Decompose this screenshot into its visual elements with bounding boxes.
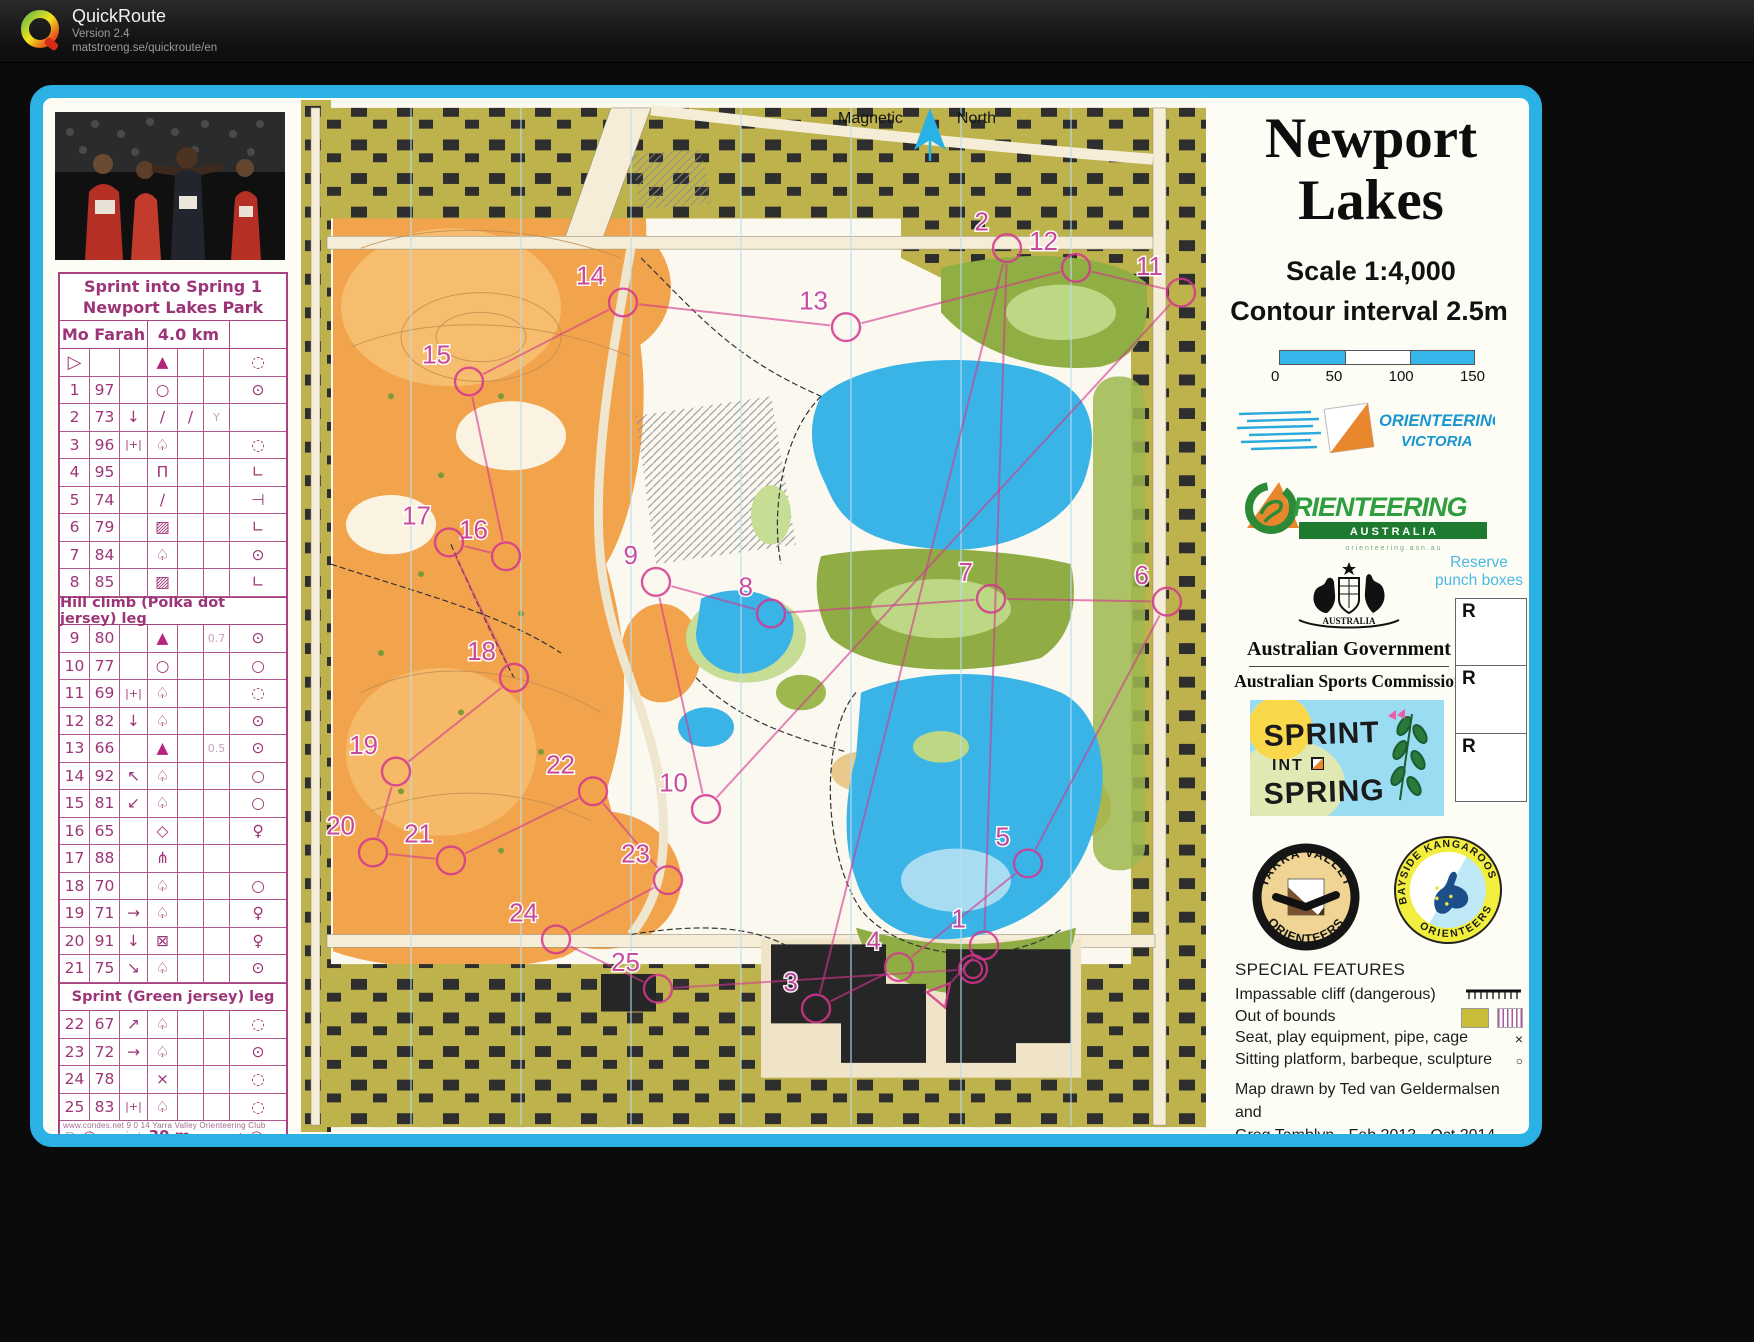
card-cell: ↗ — [120, 1011, 148, 1038]
card-cell — [120, 845, 148, 872]
card-cell: ○ — [230, 763, 286, 790]
card-cell: 4 — [60, 459, 90, 486]
card-cell — [204, 542, 230, 569]
card-cell: ◇ — [148, 818, 178, 845]
card-cell: 17 — [60, 845, 90, 872]
card-cell: ∕ — [148, 404, 178, 431]
card-cell: ◌ — [230, 432, 286, 459]
card-cell — [230, 845, 286, 872]
card-cell: ○ — [148, 377, 178, 404]
app-version: Version 2.4 — [72, 27, 217, 41]
card-cell: ○ — [148, 653, 178, 680]
card-cell: ◌ — [230, 1066, 286, 1093]
scale-tick: 100 — [1389, 368, 1414, 385]
card-cell — [120, 873, 148, 900]
card-cell: ♤ — [148, 763, 178, 790]
svg-text:AUSTRALIA: AUSTRALIA — [1322, 616, 1376, 626]
card-cell: 12 — [60, 708, 90, 735]
legend-label: Impassable cliff (dangerous) — [1235, 986, 1436, 1003]
legend-label: Seat, play equipment, pipe, cage — [1235, 1029, 1468, 1046]
special-features-heading: SPECIAL FEATURES — [1235, 960, 1529, 980]
card-cell: 77 — [90, 653, 120, 680]
card-cell: 75 — [90, 955, 120, 982]
punch-box: R — [1455, 666, 1527, 734]
punch-boxes-label: Reserve punch boxes — [1429, 554, 1529, 590]
card-cell: ♤ — [148, 432, 178, 459]
card-cell — [204, 1011, 230, 1038]
card-cell — [204, 955, 230, 982]
card-cell: ♤ — [148, 1039, 178, 1066]
card-cell: 69 — [90, 680, 120, 707]
control-number: 2 — [975, 208, 989, 236]
control-number: 25 — [611, 949, 640, 977]
card-cell: 73 — [90, 404, 120, 431]
card-cell — [178, 680, 204, 707]
card-cell — [204, 708, 230, 735]
control-number: 1 — [952, 906, 966, 934]
north-label-left: Magnetic — [838, 110, 903, 128]
card-cell: ○ — [230, 790, 286, 817]
pretex-print-note: Pretex print — [65, 1129, 142, 1146]
card-cell: 92 — [90, 763, 120, 790]
card-cell: 85 — [90, 569, 120, 596]
control-number: 4 — [867, 927, 881, 955]
control-number: 22 — [546, 752, 575, 780]
sports-commission-label: Australian Sports Commission — [1213, 671, 1485, 692]
scale-bar — [1279, 350, 1475, 365]
card-cell — [204, 1094, 230, 1121]
legend-item: Impassable cliff (dangerous) — [1235, 984, 1529, 1006]
card-cell — [120, 653, 148, 680]
card-row: 1492↖♤○ — [60, 763, 286, 791]
card-cell: 80 — [90, 625, 120, 652]
card-row: 885▨∟ — [60, 569, 286, 597]
card-row: 1788⋔ — [60, 845, 286, 873]
card-cell — [204, 763, 230, 790]
card-cell: ↙ — [120, 790, 148, 817]
punch-label-line2: punch boxes — [1429, 572, 1529, 590]
card-cell — [204, 818, 230, 845]
card-header: Mo Farah 4.0 km — [60, 321, 286, 349]
card-cell: ∟ — [230, 514, 286, 541]
card-row: 2091↓⊠♀ — [60, 928, 286, 956]
card-cell: 23 — [60, 1039, 90, 1066]
scale-tick: 150 — [1460, 368, 1485, 385]
sprint-into-spring-logo: SPRINT INT SPRING — [1250, 700, 1444, 816]
legend-item: Seat, play equipment, pipe, cage × — [1235, 1027, 1529, 1049]
card-cell — [120, 514, 148, 541]
card-cell — [178, 1066, 204, 1093]
legend-label: Sitting platform, barbeque, sculpture — [1235, 1051, 1492, 1068]
card-cell: ⊠ — [148, 928, 178, 955]
bayside-kangaroos-logo: BAYSIDE KANGAROOS ORIENTEERS — [1391, 831, 1505, 949]
card-cell: ∕ — [178, 404, 204, 431]
card-cell: ◌ — [230, 1011, 286, 1038]
card-cell: ⊙ — [230, 735, 286, 762]
card-cell: 24 — [60, 1066, 90, 1093]
control-description-card: Sprint into Spring 1 Newport Lakes Park … — [58, 272, 288, 1147]
card-cell — [204, 1039, 230, 1066]
north-arrow-icon — [912, 106, 948, 162]
card-cell — [120, 542, 148, 569]
card-cell: 74 — [90, 487, 120, 514]
card-cell: ♤ — [148, 955, 178, 982]
map-canvas[interactable]: 1234567891011121314151617181920212223242… — [301, 100, 1206, 1132]
card-cell — [204, 680, 230, 707]
card-cell: ♤ — [148, 680, 178, 707]
card-cell — [120, 487, 148, 514]
card-cell — [120, 377, 148, 404]
card-row: 2267↗♤◌ — [60, 1011, 286, 1039]
card-cell: 3 — [60, 432, 90, 459]
card-cell: ○ — [230, 873, 286, 900]
card-cell — [178, 569, 204, 596]
control-number: 13 — [799, 288, 828, 316]
card-cell: ♤ — [148, 542, 178, 569]
card-cell: 67 — [90, 1011, 120, 1038]
app-url[interactable]: matstroeng.se/quickroute/en — [72, 41, 217, 55]
card-cell: 95 — [90, 459, 120, 486]
card-cell: 11 — [60, 680, 90, 707]
card-row: 1971→♤♀ — [60, 900, 286, 928]
card-row: 2478×◌ — [60, 1066, 286, 1094]
card-cell: ▲ — [148, 625, 178, 652]
card-cell: → — [120, 1039, 148, 1066]
card-cell — [230, 404, 286, 431]
map-scale: Scale 1:4,000 — [1211, 256, 1531, 287]
svg-text:A U S T R A L I A: A U S T R A L I A — [1350, 526, 1436, 538]
control-number: 11 — [1136, 253, 1163, 281]
svg-text:SPRINT: SPRINT — [1263, 716, 1380, 753]
out-of-bounds-symbol-icon — [1461, 1008, 1523, 1028]
card-cell: 19 — [60, 900, 90, 927]
card-cell — [178, 928, 204, 955]
card-cell — [178, 873, 204, 900]
map-credits: Map drawn by Ted van Geldermalsen and Gr… — [1235, 1078, 1529, 1147]
scale-bar-segment — [1280, 351, 1345, 364]
card-cell — [178, 955, 204, 982]
card-row: 1665◇♀ — [60, 818, 286, 846]
north-indicator: Magnetic North — [838, 106, 996, 162]
card-cell: ↓ — [120, 708, 148, 735]
control-number: 7 — [959, 559, 973, 587]
coat-of-arms-icon: AUSTRALIA — [1269, 558, 1429, 636]
card-cell: 22 — [60, 1011, 90, 1038]
card-cell — [178, 735, 204, 762]
card-cell: 15 — [60, 790, 90, 817]
card-cell: 84 — [90, 542, 120, 569]
card-row: 273↓∕∕Y — [60, 404, 286, 432]
control-number: 24 — [509, 900, 538, 928]
card-cell: 21 — [60, 955, 90, 982]
scale-bar-ticks: 0 50 100 150 — [1271, 368, 1485, 385]
card-cell: ⊙ — [230, 377, 286, 404]
card-cell — [178, 790, 204, 817]
card-cell: ∟ — [230, 569, 286, 596]
card-row: 980▲0.7⊙ — [60, 625, 286, 653]
card-cell — [120, 625, 148, 652]
card-cell: 0.7 — [204, 625, 230, 652]
control-number: 17 — [402, 503, 431, 531]
card-cell — [204, 653, 230, 680]
card-cell: Y — [204, 404, 230, 431]
finish-photo — [55, 112, 285, 260]
card-cell — [120, 349, 148, 376]
card-cell: 20 — [60, 928, 90, 955]
map-title-line2: Lakes — [1221, 170, 1521, 232]
card-cell: ⊣ — [230, 487, 286, 514]
card-cell — [178, 349, 204, 376]
control-number: 19 — [349, 732, 378, 760]
card-cell — [178, 1011, 204, 1038]
card-cell — [204, 514, 230, 541]
divider — [1249, 666, 1449, 667]
card-cell: 6 — [60, 514, 90, 541]
card-cell: 91 — [90, 928, 120, 955]
card-cell: 7 — [60, 542, 90, 569]
card-cell: 14 — [60, 763, 90, 790]
card-row: 784♤⊙ — [60, 542, 286, 570]
card-cell — [204, 928, 230, 955]
card-cell — [204, 487, 230, 514]
card-cell: 71 — [90, 900, 120, 927]
svg-text:INT: INT — [1272, 757, 1304, 774]
credits-line1: Map drawn by Ted van Geldermalsen and — [1235, 1078, 1529, 1124]
card-cell — [178, 900, 204, 927]
card-cell: 81 — [90, 790, 120, 817]
control-number: 8 — [739, 574, 753, 602]
card-cell: ▲ — [148, 735, 178, 762]
legend-item: Out of bounds — [1235, 1006, 1529, 1028]
card-cell: ♤ — [148, 1011, 178, 1038]
card-cell: ♤ — [148, 1094, 178, 1121]
card-cell: ♀ — [230, 900, 286, 927]
card-cell: ○ — [230, 653, 286, 680]
card-cell: 65 — [90, 818, 120, 845]
card-cell: ∟ — [230, 459, 286, 486]
card-cell: 18 — [60, 873, 90, 900]
control-number: 21 — [404, 821, 433, 849]
card-cell — [204, 900, 230, 927]
card-cell: ↖ — [120, 763, 148, 790]
control-number: 9 — [624, 542, 638, 570]
course-distance: 4.0 km — [148, 321, 230, 348]
legend-panel: Newport Lakes Scale 1:4,000 Contour inte… — [1193, 98, 1529, 1134]
card-cell: ⋔ — [148, 845, 178, 872]
card-cell: 8 — [60, 569, 90, 596]
control-number: 10 — [659, 769, 688, 797]
card-cell: 96 — [90, 432, 120, 459]
card-cell: ↓ — [120, 928, 148, 955]
app-title: QuickRoute — [72, 6, 217, 27]
card-cell: 88 — [90, 845, 120, 872]
card-cell: ▨ — [148, 514, 178, 541]
card-cell — [90, 349, 120, 376]
control-number: 18 — [467, 638, 496, 666]
cliff-symbol-icon — [1465, 986, 1523, 1008]
circle-symbol-icon: ○ — [1516, 1051, 1523, 1073]
card-cell: 78 — [90, 1066, 120, 1093]
card-row: 396|+|♤◌ — [60, 432, 286, 460]
card-cell: Π — [148, 459, 178, 486]
card-cell: ⊙ — [230, 1039, 286, 1066]
card-section-header: Hill climb (Polka dot jersey) leg — [60, 597, 286, 626]
card-row: 1366▲0.5⊙ — [60, 735, 286, 763]
card-cell — [178, 845, 204, 872]
card-cell: 25 — [60, 1094, 90, 1121]
card-cell: × — [148, 1066, 178, 1093]
punch-label-line1: Reserve — [1429, 554, 1529, 572]
card-cell: 66 — [90, 735, 120, 762]
card-cell: ◌ — [230, 349, 286, 376]
card-cell: 10 — [60, 653, 90, 680]
card-row: 1169|+|♤◌ — [60, 680, 286, 708]
card-cell — [204, 459, 230, 486]
card-cell: 0.5 — [204, 735, 230, 762]
card-row: 1581↙♤○ — [60, 790, 286, 818]
card-cell: ♤ — [148, 790, 178, 817]
card-row: 495Π∟ — [60, 459, 286, 487]
card-cell — [120, 569, 148, 596]
legend-item: Sitting platform, barbeque, sculpture ○ — [1235, 1049, 1529, 1071]
event-line2: Newport Lakes Park — [60, 297, 286, 318]
card-cell — [178, 763, 204, 790]
card-cell: ♤ — [148, 900, 178, 927]
card-cell — [204, 349, 230, 376]
control-number: 15 — [422, 342, 451, 370]
card-cell: 2 — [60, 404, 90, 431]
card-cell: ♀ — [230, 818, 286, 845]
svg-text:RIENTEERING: RIENTEERING — [1293, 492, 1468, 522]
card-cell — [178, 487, 204, 514]
runner-name: Mo Farah — [60, 321, 148, 348]
card-cell — [178, 542, 204, 569]
card-cell: ↓ — [120, 404, 148, 431]
credits-line2: Greg Tamblyn - Feb 2013 - Oct 2014 — [1235, 1124, 1529, 1147]
card-cell — [204, 790, 230, 817]
control-card-rows: ▷▲◌197○⊙273↓∕∕Y396|+|♤◌495Π∟574∕⊣679▨∟78… — [60, 349, 286, 1121]
australian-government-label: Australian Government — [1213, 638, 1485, 661]
card-cell — [178, 514, 204, 541]
card-row: 197○⊙ — [60, 377, 286, 405]
control-number: 20 — [326, 813, 355, 841]
card-cell: ∕ — [148, 487, 178, 514]
card-cell — [178, 625, 204, 652]
card-cell — [120, 1066, 148, 1093]
cross-symbol-icon: × — [1515, 1029, 1523, 1051]
card-row: 1077○○ — [60, 653, 286, 681]
card-row: 2583|+|♤◌ — [60, 1094, 286, 1122]
card-cell — [178, 459, 204, 486]
punch-box: R — [1455, 598, 1527, 666]
card-cell — [120, 735, 148, 762]
card-cell: |+| — [120, 1094, 148, 1121]
map-sheet: Sprint into Spring 1 Newport Lakes Park … — [30, 85, 1542, 1147]
card-cell: ↘ — [120, 955, 148, 982]
control-number: 3 — [784, 969, 798, 997]
card-cell: 5 — [60, 487, 90, 514]
punch-box: R — [1455, 734, 1527, 802]
orienteering-victoria-logo: ORIENTEERING VICTORIA — [1233, 400, 1495, 460]
card-cell — [204, 569, 230, 596]
card-cell: ◌ — [230, 1094, 286, 1121]
svg-text:SPRING: SPRING — [1263, 774, 1385, 811]
special-features: SPECIAL FEATURES Impassable cliff (dange… — [1235, 960, 1529, 1070]
yarra-valley-orienteers-logo: YARRA VALLEY ORIENTEERS — [1252, 843, 1360, 951]
scale-bar-segment — [1345, 351, 1411, 364]
quickroute-logo-icon — [16, 6, 66, 56]
card-header-blank — [230, 321, 286, 348]
card-cell: 97 — [90, 377, 120, 404]
card-cell: |+| — [120, 432, 148, 459]
card-cell: |+| — [120, 680, 148, 707]
card-cell: 82 — [90, 708, 120, 735]
scale-tick: 0 — [1271, 368, 1279, 385]
svg-text:o r i e n t e e r i n g . a s: o r i e n t e e r i n g . a s n . a u — [1346, 545, 1441, 552]
card-cell — [204, 873, 230, 900]
map-title: Newport Lakes — [1221, 108, 1521, 232]
scale-bar-segment — [1411, 351, 1474, 364]
card-cell: 13 — [60, 735, 90, 762]
control-number: 5 — [996, 824, 1010, 852]
svg-text:ORIENTEERING: ORIENTEERING — [1379, 412, 1495, 430]
legend-label: Out of bounds — [1235, 1008, 1336, 1025]
svg-text:VICTORIA: VICTORIA — [1401, 433, 1472, 450]
north-label-right: North — [957, 110, 996, 128]
card-cell — [178, 1094, 204, 1121]
card-cell — [120, 459, 148, 486]
card-cell — [178, 708, 204, 735]
card-section-header: Sprint (Green jersey) leg — [60, 983, 286, 1012]
event-title: Sprint into Spring 1 Newport Lakes Park — [60, 274, 286, 321]
card-row: 679▨∟ — [60, 514, 286, 542]
event-line1: Sprint into Spring 1 — [60, 276, 286, 297]
card-cell: ⊙ — [230, 625, 286, 652]
card-cell: 83 — [90, 1094, 120, 1121]
card-row: 2175↘♤⊙ — [60, 955, 286, 983]
card-cell: ⊙ — [230, 955, 286, 982]
card-cell — [204, 377, 230, 404]
card-cell — [120, 818, 148, 845]
card-cell: ♤ — [148, 873, 178, 900]
card-row: 574∕⊣ — [60, 487, 286, 515]
control-number: 6 — [1135, 562, 1149, 590]
card-cell — [204, 1066, 230, 1093]
card-cell: ▷ — [60, 349, 90, 376]
card-row: 1282↓♤⊙ — [60, 708, 286, 736]
card-cell — [178, 1039, 204, 1066]
card-cell: ▨ — [148, 569, 178, 596]
card-cell: 79 — [90, 514, 120, 541]
card-cell — [204, 432, 230, 459]
card-cell: ◌ — [230, 680, 286, 707]
card-cell: 1 — [60, 377, 90, 404]
control-number: 23 — [621, 841, 650, 869]
card-cell: ▲ — [148, 349, 178, 376]
card-cell — [204, 845, 230, 872]
card-cell: 70 — [90, 873, 120, 900]
reserve-punch-boxes: R R R — [1455, 598, 1527, 802]
titlebar: QuickRoute Version 2.4 matstroeng.se/qui… — [0, 0, 1754, 63]
orienteering-australia-logo: RIENTEERING A U S T R A L I A o r i e n … — [1239, 476, 1495, 556]
card-cell — [178, 653, 204, 680]
card-cell: → — [120, 900, 148, 927]
card-cell: ⊙ — [230, 708, 286, 735]
card-cell — [178, 818, 204, 845]
card-cell: ♀ — [230, 928, 286, 955]
card-cell — [178, 432, 204, 459]
scale-tick: 50 — [1326, 368, 1343, 385]
